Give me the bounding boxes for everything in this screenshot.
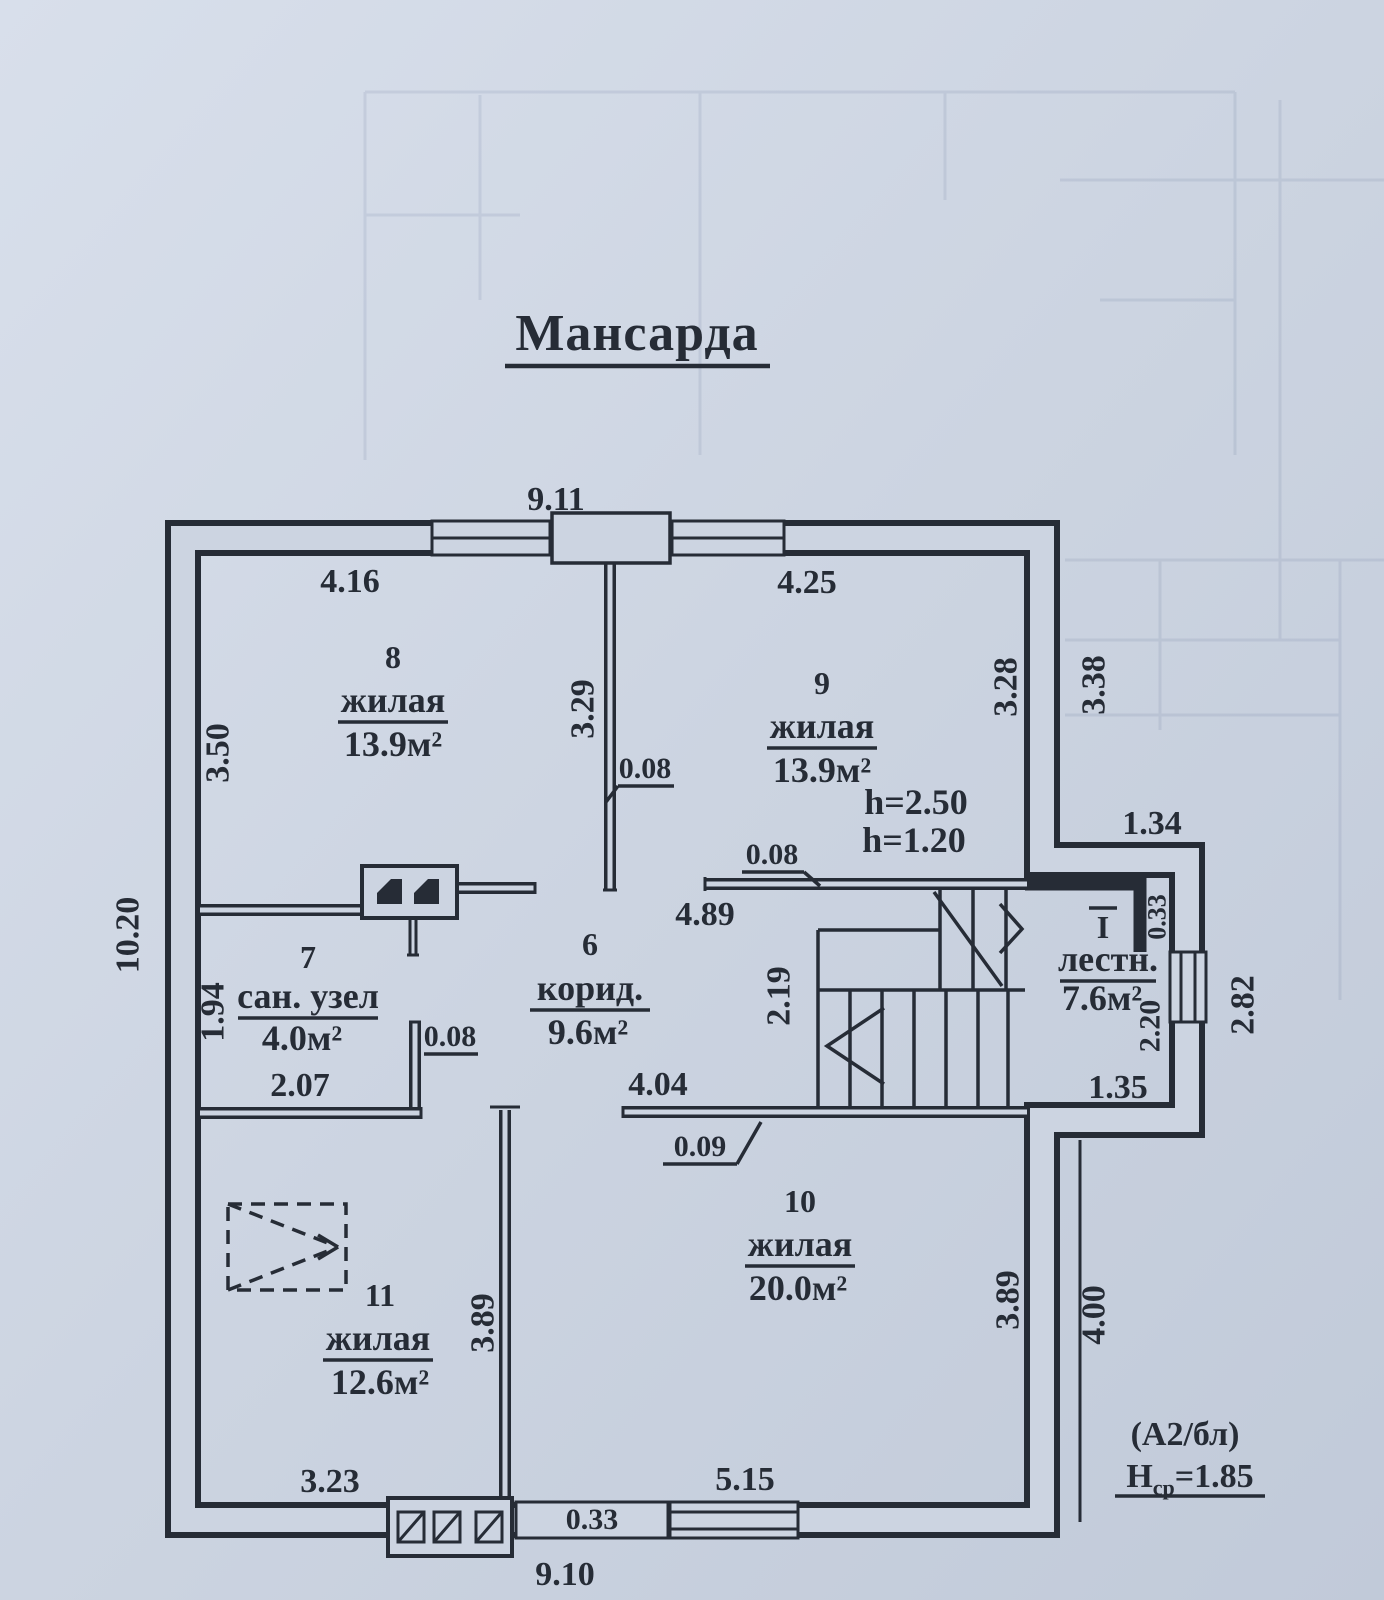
dim-room9-bottom: 4.89 [675, 896, 735, 933]
room8-area: 13.9м² [344, 724, 442, 764]
corridor-name: корид. [537, 968, 643, 1008]
avg-height-subscript: ср [1153, 1475, 1175, 1500]
room11-name: жилая [326, 1318, 431, 1358]
dim-room9-top: 4.25 [777, 564, 837, 601]
bathroom-number: 7 [300, 939, 316, 975]
dim-room11-bottom: 3.23 [300, 1463, 360, 1500]
stairwell-area: 7.6м² [1062, 978, 1142, 1018]
room10-area: 20.0м² [749, 1268, 847, 1308]
window-top-right [672, 521, 784, 555]
dim-room8-top: 4.16 [320, 563, 380, 600]
room9-number: 9 [814, 665, 830, 701]
room8-number: 8 [385, 639, 401, 675]
room10-name: жилая [748, 1224, 853, 1264]
avg-height-annotation: Нср=1.85 [1126, 1458, 1253, 1500]
chimney-flue-block-bottom [388, 1498, 512, 1556]
floor-plan-page: Мансарда 9.11 4.16 4.25 4.89 0.08 0.08 0… [0, 0, 1384, 1600]
stairwell-name: лестн. [1058, 939, 1158, 979]
room10-number: 10 [784, 1183, 816, 1219]
dim-wall-008a: 0.08 [619, 752, 672, 785]
dim-corridor-bottom: 4.04 [628, 1066, 688, 1103]
paper-background [0, 0, 1384, 1600]
dim-room9-right: 3.28 [988, 657, 1025, 717]
dim-wall-008b: 0.08 [746, 838, 799, 871]
bathroom-name: сан. узел [237, 976, 379, 1016]
window-bottom [670, 1502, 798, 1538]
dim-left-overall: 10.20 [110, 897, 147, 974]
chimney-flue-block-middle [362, 866, 457, 918]
dim-room8-left: 3.50 [200, 723, 237, 783]
corridor-number: 6 [582, 926, 598, 962]
dim-room8-right: 3.29 [565, 679, 602, 739]
dim-bay-right: 2.82 [1225, 975, 1262, 1035]
avg-height-value: =1.85 [1175, 1458, 1254, 1495]
top-wall-pier [552, 513, 670, 563]
window-stair-bay [1170, 952, 1206, 1022]
room11-area: 12.6м² [331, 1362, 429, 1402]
bathroom-area: 4.0м² [262, 1018, 342, 1058]
room8-name: жилая [341, 680, 446, 720]
dim-room11-right: 3.89 [465, 1293, 502, 1353]
dim-room10-bottom: 5.15 [715, 1461, 775, 1498]
dim-bottom-overall: 9.10 [535, 1556, 595, 1593]
page-title: Мансарда [515, 305, 758, 362]
dim-right-lower: 4.00 [1076, 1285, 1113, 1345]
avg-height-symbol: Н [1126, 1458, 1152, 1495]
dim-wall-008c: 0.08 [424, 1020, 477, 1053]
room9-height-2: h=1.20 [862, 820, 966, 860]
dim-san-left: 1.94 [195, 982, 232, 1042]
dim-bottom-niche: 0.33 [566, 1503, 619, 1536]
dim-room10-right: 3.89 [990, 1270, 1027, 1330]
dim-bay-top: 1.34 [1122, 805, 1182, 842]
dim-right-upper: 3.38 [1076, 655, 1113, 715]
floor-plan-drawing: Мансарда 9.11 4.16 4.25 4.89 0.08 0.08 0… [0, 0, 1384, 1600]
window-top-left [432, 521, 550, 555]
room9-name: жилая [770, 706, 875, 746]
dim-top-overall: 9.11 [527, 481, 585, 518]
dim-stair-width: 2.19 [761, 966, 798, 1026]
dim-wall-009: 0.09 [674, 1130, 727, 1163]
dim-bay-niche: 0.33 [1143, 894, 1172, 940]
room11-number: 11 [365, 1277, 395, 1313]
dim-san-bottom: 2.07 [270, 1067, 330, 1104]
block-type-annotation: (А2/бл) [1131, 1416, 1240, 1453]
room9-area: 13.9м² [773, 750, 871, 790]
dim-stair-bottom: 1.35 [1088, 1069, 1148, 1106]
room9-height-1: h=2.50 [864, 782, 968, 822]
corridor-area: 9.6м² [548, 1012, 628, 1052]
